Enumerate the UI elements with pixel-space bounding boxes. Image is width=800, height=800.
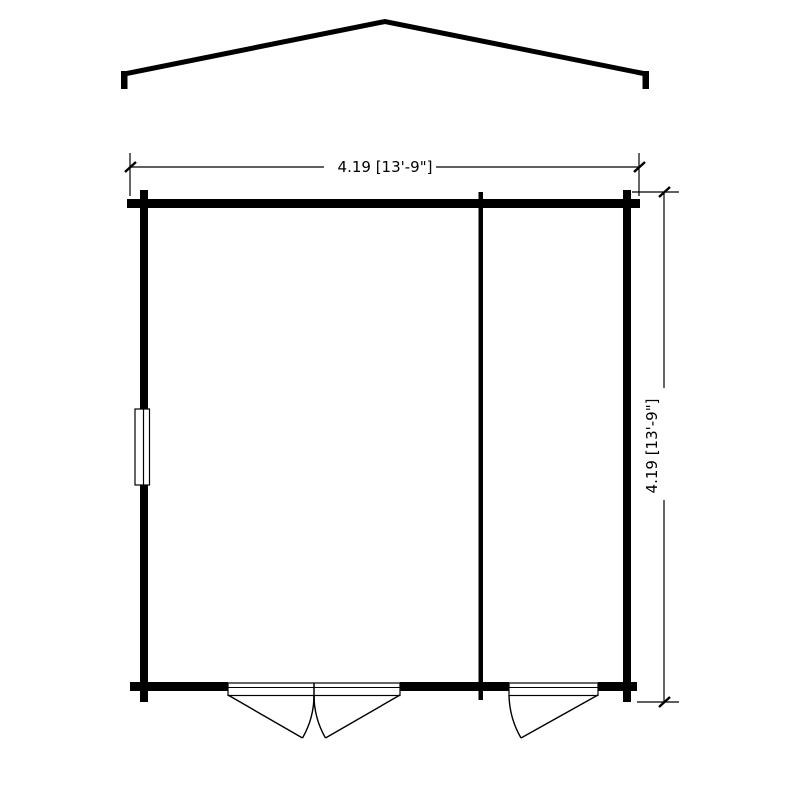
interior-partition-wall xyxy=(479,192,484,700)
roof-outline xyxy=(121,22,649,90)
bottom-wall-right-segment xyxy=(598,682,637,691)
single-door-leaf xyxy=(521,695,598,738)
double-door-left-swing-arc xyxy=(303,695,315,738)
bottom-wall-left-segment xyxy=(130,682,228,691)
window-frame xyxy=(135,409,150,485)
roof-slopes xyxy=(124,22,646,75)
width-dimension: 4.19 [13'-9"] xyxy=(125,153,645,196)
single-door-threshold xyxy=(509,683,598,696)
floor-plan-walls xyxy=(127,190,640,702)
width-dim-label: 4.19 [13'-9"] xyxy=(338,158,433,176)
double-door xyxy=(228,683,400,738)
depth-dim-label: 4.19 [13'-9"] xyxy=(643,399,661,494)
roof-left-eave-end xyxy=(121,71,128,89)
double-door-left-leaf xyxy=(228,695,303,738)
bottom-wall-middle-segment xyxy=(400,682,509,691)
roof-right-eave-end xyxy=(643,71,650,89)
double-door-right-swing-arc xyxy=(314,695,326,738)
single-door-swing-arc xyxy=(509,695,521,738)
right-wall xyxy=(623,190,631,702)
window xyxy=(135,409,150,485)
single-door xyxy=(509,683,598,738)
depth-dimension: 4.19 [13'-9"] xyxy=(632,187,679,707)
top-wall xyxy=(127,199,640,208)
floor-plan-canvas: 4.19 [13'-9"] 4.19 [13'-9"] xyxy=(0,0,800,800)
double-door-right-leaf xyxy=(326,695,401,738)
